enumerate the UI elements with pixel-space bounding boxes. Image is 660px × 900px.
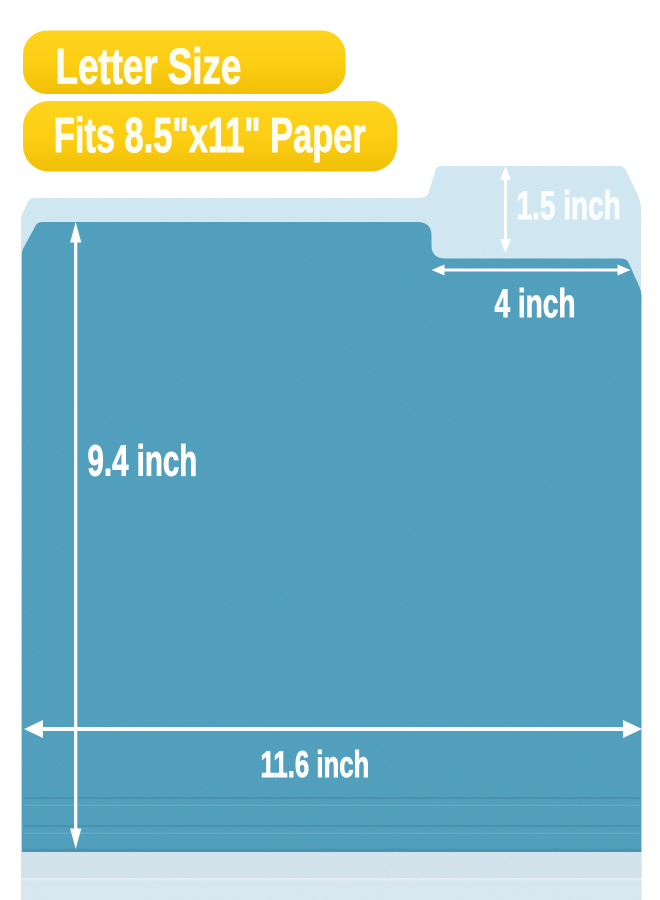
svg-text:Fits 8.5"x11" Paper: Fits 8.5"x11" Paper [54,108,366,164]
svg-text:4 inch: 4 inch [495,282,576,326]
svg-text:9.4 inch: 9.4 inch [88,436,198,485]
svg-text:1.5 inch: 1.5 inch [517,184,621,228]
svg-text:11.6 inch: 11.6 inch [261,744,370,786]
svg-text:Letter Size: Letter Size [56,39,242,95]
